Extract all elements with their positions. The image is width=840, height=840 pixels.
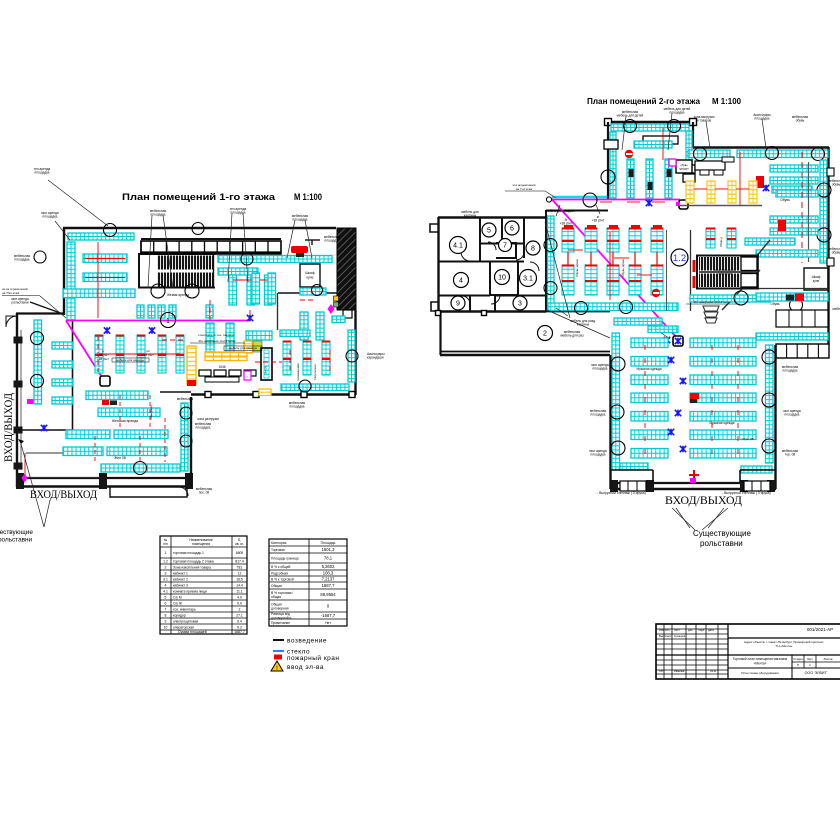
svg-text:Обувь д/рем: Обувь д/рем (621, 259, 625, 276)
svg-text:Нет: Нет (325, 621, 331, 625)
svg-text:ввод эл-ва: ввод эл-ва (287, 664, 324, 671)
svg-text:5: 5 (165, 595, 167, 599)
svg-text:мебель: мебель (833, 307, 840, 311)
svg-text:ТЦ «Мечта»: ТЦ «Мечта» (776, 644, 793, 648)
svg-text:хоз. инвентарь: хоз. инвентарь (173, 607, 196, 611)
svg-text:Шкаф: Шкаф (305, 271, 315, 275)
svg-text:Лист: Лист (807, 657, 814, 661)
svg-text:3: 3 (518, 301, 522, 308)
svg-text:М 1:100: М 1:100 (294, 192, 322, 202)
svg-text:и товаров: и товаров (697, 119, 712, 123)
svg-text:6.4: 6.4 (237, 619, 242, 623)
svg-text:1.2: 1.2 (163, 559, 168, 563)
svg-text:4.1: 4.1 (453, 243, 463, 250)
svg-text:общая: общая (271, 595, 281, 599)
svg-text:ВХОД/ВЫХОД: ВХОД/ВЫХОД (3, 393, 15, 462)
svg-text:78,1: 78,1 (324, 556, 333, 561)
svg-text:Имульская: Имульская (313, 364, 317, 380)
svg-text:Категория: Категория (271, 541, 287, 545)
svg-text:Примечание: Примечание (271, 621, 290, 625)
svg-text:781: 781 (237, 565, 243, 569)
svg-text:рольставни: рольставни (11, 301, 28, 305)
svg-text:площадка: площадка (43, 215, 58, 219)
svg-text:обувь: обувь (832, 183, 840, 187)
svg-text:10: 10 (164, 625, 168, 629)
svg-text:88,9554: 88,9554 (320, 592, 336, 597)
svg-text:План помещений 2-го этажа: План помещений 2-го этажа (587, 97, 700, 106)
svg-text:- Выгрузной стеллаж ( 3 ярус: - Выгрузной стеллаж ( 3 яруса) (597, 491, 646, 495)
svg-text:03.21: 03.21 (710, 669, 717, 673)
svg-text:помещения: помещения (192, 542, 210, 546)
svg-text:площадка: площадка (35, 171, 50, 175)
svg-text:площадка: площадка (196, 426, 211, 430)
svg-text:площадка: площадка (290, 405, 305, 409)
svg-text:купе: купе (307, 275, 314, 279)
svg-text:1687.7: 1687.7 (234, 630, 245, 634)
svg-text:обувь: обувь (832, 251, 840, 255)
svg-text:1.2: 1.2 (673, 253, 686, 264)
svg-text:Мужская одежда: Мужская одежда (637, 367, 662, 371)
svg-text:ООО 'ЭЛВИТ': ООО 'ЭЛВИТ' (805, 671, 828, 675)
svg-text:Обувь: Обувь (780, 198, 790, 202)
svg-text:1501,3: 1501,3 (322, 547, 335, 552)
svg-text:площадка: площадка (325, 239, 340, 243)
svg-text:торговая площадь 2 этажа: торговая площадь 2 этажа (173, 559, 214, 563)
svg-text:Дата: Дата (708, 628, 714, 632)
svg-text:ГИП: ГИП (659, 669, 664, 673)
svg-text:Выполнил: Выполнил (659, 634, 672, 638)
svg-text:Кузнецов: Кузнецов (674, 634, 686, 638)
svg-text:Иванова: Иванова (674, 669, 685, 673)
svg-text:Жен 08: Жен 08 (114, 456, 126, 460)
svg-text:ВХОД/ВЫХОД: ВХОД/ВЫХОД (30, 489, 97, 501)
svg-text:40+ шкафчиков 13+13 полок: 40+ шкафчиков 13+13 полок (693, 300, 731, 304)
svg-text:коридор: коридор (173, 613, 186, 617)
svg-text:помещения: помещения (718, 272, 733, 275)
svg-text:11.1: 11.1 (236, 589, 242, 593)
svg-text:9: 9 (165, 619, 167, 623)
svg-text:7: 7 (503, 243, 507, 250)
svg-text:3: 3 (165, 571, 167, 575)
svg-text:108,3: 108,3 (323, 571, 334, 576)
svg-text:электрощитовая: электрощитовая (173, 619, 198, 623)
svg-text:Листов: Листов (823, 657, 833, 661)
svg-text:1546: 1546 (218, 365, 225, 369)
svg-text:В % к торговой: В % к торговой (271, 577, 294, 581)
svg-text:площадка: площадка (783, 369, 798, 373)
svg-text:Лист: Лист (674, 628, 680, 632)
svg-text:на This этаж: на This этаж (2, 291, 19, 295)
svg-text:площадка: площадка (591, 413, 606, 417)
svg-text:площадка: площадка (15, 258, 30, 262)
svg-text:рольставни: рольставни (0, 537, 33, 544)
svg-text:Подп.: Подп. (698, 628, 705, 632)
svg-text:5: 5 (487, 228, 491, 235)
svg-text:Р: Р (797, 663, 799, 667)
svg-text:возведение: возведение (287, 638, 327, 645)
svg-text:2: 2 (543, 331, 547, 338)
svg-text:2: 2 (239, 607, 241, 611)
svg-text:6: 6 (165, 601, 167, 605)
svg-text:6: 6 (510, 226, 514, 233)
svg-text:6.9: 6.9 (237, 601, 242, 605)
svg-text:Существующие: Существующие (693, 529, 752, 538)
svg-text:12: 12 (238, 571, 242, 575)
svg-text:мебель для детей: мебель для детей (617, 114, 644, 118)
svg-text:1: 1 (166, 318, 170, 325)
svg-text:27.1: 27.1 (236, 613, 243, 617)
svg-text:Зона накопления товара: Зона накопления товара (173, 565, 211, 569)
svg-text:«Мечта»: «Мечта» (754, 662, 767, 666)
svg-text:Обувь д/рем: Обувь д/рем (575, 259, 579, 276)
svg-text:обувь: обувь (796, 119, 805, 123)
svg-text:Стадия: Стадия (793, 657, 803, 661)
svg-text:пожарный кран: пожарный кран (287, 654, 340, 662)
svg-text:В % к общей: В % к общей (271, 565, 291, 569)
svg-text:8: 8 (165, 613, 167, 617)
svg-text:Зона размещения: Зона размещения (714, 268, 736, 272)
svg-text:кв. м.: кв. м. (235, 542, 243, 546)
svg-text:стеллаж для хоз. товаров: стеллаж для хоз. товаров (198, 333, 234, 337)
svg-text:пос. 08: пос. 08 (199, 491, 210, 495)
svg-text:♪: ♪ (246, 374, 248, 379)
svg-text:картины: картины (464, 214, 477, 218)
svg-text:договорной и: договорной и (271, 616, 292, 620)
svg-text:10: 10 (498, 275, 506, 282)
svg-text:торговая площадь 1: торговая площадь 1 (173, 551, 204, 555)
svg-text:ВХОД/ВЫХОД: ВХОД/ВЫХОД (665, 495, 742, 507)
svg-text:карандаши: карандаши (367, 356, 384, 360)
svg-text:размещение: размещение (296, 363, 300, 381)
svg-text:+38 (0н7: +38 (0н7 (97, 357, 109, 361)
svg-text:SPORT: SPORT (679, 167, 689, 171)
svg-text:План схемы оборудования: План схемы оборудования (741, 671, 779, 675)
svg-text:16.5: 16.5 (236, 577, 243, 581)
svg-text:-1687,7: -1687,7 (321, 613, 336, 618)
svg-text:6809: 6809 (236, 551, 244, 555)
svg-text:М 1:100: М 1:100 (712, 97, 741, 106)
svg-text:Зона разгр.: Зона разгр. (149, 404, 153, 420)
svg-text:кабинет 3: кабинет 3 (173, 583, 188, 587)
svg-text:площадка: площадка (785, 413, 800, 417)
svg-text:мебель для раздев.: мебель для раздев. (545, 209, 574, 213)
svg-text:4.1: 4.1 (163, 589, 168, 593)
svg-text:Кол.: Кол. (665, 628, 670, 632)
svg-text:Жемая аренда: Жемая аренда (167, 293, 189, 297)
svg-text:817.4: 817.4 (235, 559, 244, 563)
svg-text:9.2: 9.2 (237, 625, 242, 629)
svg-text:4.9: 4.9 (237, 595, 242, 599)
svg-text:зона разгрузки: зона разгрузки (197, 417, 219, 421)
svg-text:площадка: площадка (591, 453, 606, 457)
svg-text:4: 4 (459, 278, 463, 285)
svg-text:40+ шкафчиков 13+13 полок: 40+ шкафчиков 13+13 полок (198, 339, 236, 343)
svg-text:Изм.: Изм. (659, 628, 665, 632)
svg-text:п/п: п/п (163, 542, 168, 546)
svg-text:Женская аренда: Женская аренда (112, 419, 138, 423)
svg-text:рольставни: рольставни (700, 539, 743, 548)
svg-text:купе: купе (813, 279, 820, 283)
svg-text:Торговый план помещения магаз: Торговый план помещения магазина (733, 657, 788, 661)
svg-text:операторская: операторская (173, 625, 194, 629)
svg-text:4: 4 (165, 583, 167, 587)
svg-text:Мужская одежда: Мужская одежда (710, 421, 735, 425)
svg-text:договорная: договорная (271, 606, 289, 610)
svg-text:площадка: площадка (593, 367, 608, 371)
svg-text:5,2602: 5,2602 (322, 564, 335, 569)
svg-text:3.1: 3.1 (163, 577, 168, 581)
svg-text:План помещений 1-го этажа: План помещений 1-го этажа (122, 192, 276, 202)
svg-text:14.4: 14.4 (236, 583, 243, 587)
svg-text:мебель для одежды: мебель для одежды (229, 346, 257, 350)
svg-text:тор. 08: тор. 08 (785, 453, 796, 457)
svg-text:существующие: существующие (0, 529, 33, 536)
svg-text:Обувь: Обувь (770, 302, 780, 306)
svg-text:Площадь: Площадь (321, 541, 336, 545)
svg-text:комната приема пищи: комната приема пищи (173, 589, 207, 593)
svg-text:Подсобная: Подсобная (271, 571, 288, 575)
svg-text:Торговая: Торговая (271, 548, 285, 552)
svg-text:Муж. 08: Муж. 08 (742, 437, 753, 441)
svg-text:кабинет 2: кабинет 2 (173, 577, 188, 581)
svg-text:Сумма площадей: Сумма площадей (178, 630, 207, 634)
svg-text:Док.: Док. (688, 628, 693, 632)
svg-text:Площадь граница: Площадь граница (271, 556, 299, 560)
svg-text:1687,7: 1687,7 (322, 583, 335, 588)
svg-text:Зел 50: Зел 50 (264, 365, 268, 374)
svg-text:кабинет 1: кабинет 1 (173, 571, 188, 575)
svg-text:3.1: 3.1 (523, 276, 533, 283)
svg-text:1: 1 (165, 551, 167, 555)
svg-text:9: 9 (456, 301, 460, 308)
svg-text:001/2021-АР: 001/2021-АР (807, 627, 833, 632)
svg-text:8: 8 (531, 246, 535, 253)
svg-text:мебель для одежды: мебель для одежды (116, 358, 144, 362)
svg-text:Обувь д: Обувь д (719, 237, 723, 247)
svg-text:7,2137: 7,2137 (322, 577, 335, 582)
svg-text:мебельная: мебельная (177, 397, 193, 401)
svg-text:+38 (0н7: +38 (0н7 (142, 353, 154, 357)
svg-text:Общая: Общая (271, 584, 282, 588)
svg-text:С/у М: С/у М (173, 595, 182, 599)
svg-text:на 7+2 этаж: на 7+2 этаж (516, 187, 533, 191)
svg-text:мебель для раз: мебель для раз (560, 334, 584, 338)
svg-text:С/у Ж: С/у Ж (173, 601, 182, 605)
svg-text:+38 (0н7: +38 (0н7 (592, 219, 605, 223)
svg-text:7: 7 (165, 607, 167, 611)
svg-text:2: 2 (165, 565, 167, 569)
